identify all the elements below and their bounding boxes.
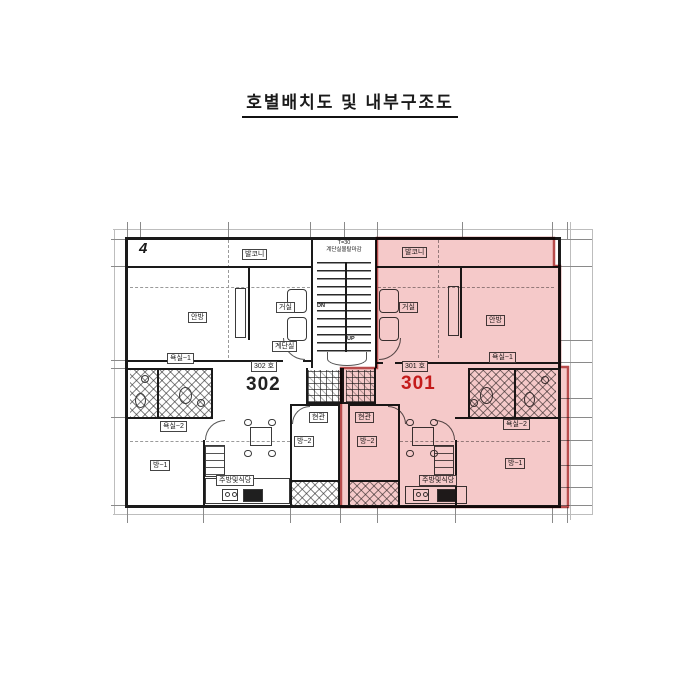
wall-segment	[125, 237, 128, 508]
wall-segment	[340, 368, 344, 404]
grid-tick	[558, 465, 592, 466]
utility-tile-area-301	[350, 482, 398, 505]
guide-line	[114, 229, 115, 515]
room-label-master-302: 안방	[188, 312, 207, 323]
wall-segment	[376, 266, 558, 268]
kitchen-shelf	[434, 445, 454, 477]
dining-chair	[244, 450, 252, 457]
wall-segment	[127, 368, 213, 370]
room-label-balcony-301: 발코니	[402, 247, 427, 258]
sofa	[379, 289, 399, 313]
wall-segment	[211, 368, 213, 419]
wardrobe	[448, 286, 459, 336]
corner-mark: 4	[139, 240, 147, 257]
grid-tick	[558, 440, 592, 441]
dining-chair	[244, 419, 252, 426]
room-label-bedroom1-302: 방~1	[150, 460, 170, 471]
grid-tick	[567, 222, 568, 239]
dining-chair	[430, 450, 438, 457]
stair-landing-arc	[327, 352, 367, 366]
entrance-tile-area-301	[346, 370, 374, 402]
dining-chair	[430, 419, 438, 426]
kitchen-shelf	[205, 445, 225, 477]
stair-up-label: UP	[347, 336, 355, 342]
grid-tick	[558, 505, 592, 506]
grid-tick	[558, 340, 592, 341]
sofa	[379, 317, 399, 341]
stair-treads	[317, 262, 371, 352]
room-label-bedroom1-301: 방~1	[505, 458, 525, 469]
grid-tick	[558, 239, 592, 240]
dining-chair	[268, 450, 276, 457]
guide-line	[113, 229, 593, 230]
dining-chair	[268, 419, 276, 426]
dining-chair	[406, 450, 414, 457]
grid-tick	[127, 507, 128, 523]
wall-segment	[375, 237, 377, 368]
guide-line	[592, 229, 593, 514]
room-label-bedroom2-301: 방~2	[357, 436, 377, 447]
wall-segment	[311, 237, 313, 368]
dining-table	[412, 427, 434, 446]
wall-segment	[468, 368, 470, 419]
wardrobe	[235, 288, 246, 338]
room-label-bath1-302: 욕실~1	[167, 353, 194, 364]
room-label-kitchen-302: 주방및식당	[216, 475, 254, 486]
wall-segment	[374, 368, 376, 404]
centerline	[130, 287, 310, 289]
unit-designation-302: 302 호	[251, 361, 277, 372]
stove	[243, 489, 263, 502]
grid-tick	[552, 507, 553, 523]
grid-tick	[558, 362, 592, 363]
grid-tick	[455, 507, 456, 523]
wall-segment	[455, 440, 457, 507]
sink-bowl	[423, 492, 428, 497]
wall-segment	[203, 440, 205, 507]
room-label-living-301: 거실	[399, 302, 418, 313]
toilet	[179, 387, 192, 404]
washbasin	[197, 399, 205, 407]
washbasin	[141, 375, 149, 383]
grid-tick	[203, 507, 204, 523]
wall-segment	[348, 480, 400, 482]
sink-bowl	[416, 492, 421, 497]
toilet	[524, 392, 535, 407]
washbasin	[541, 376, 549, 384]
door-arc	[292, 406, 310, 424]
washbasin	[470, 399, 478, 407]
room-label-kitchen-301: 주방및식당	[419, 475, 457, 486]
wall-segment	[398, 404, 400, 505]
wall-segment	[306, 368, 308, 404]
wall-segment	[514, 368, 516, 417]
centerline	[378, 287, 554, 289]
centerline	[438, 240, 440, 358]
wall-segment	[157, 368, 159, 417]
wall-segment	[290, 480, 340, 482]
wall-segment	[460, 268, 462, 338]
room-label-entrance-302: 현관	[309, 412, 328, 423]
stair-dn-label: DN	[317, 303, 325, 309]
wall-segment	[303, 360, 313, 362]
grid-tick	[558, 417, 592, 418]
sofa	[287, 317, 307, 341]
centerline	[228, 240, 230, 358]
floor-plan-page: 호별배치도 및 내부구조도 4 T=30 계단실몰탈마감 DN UP 계단실 발…	[0, 0, 700, 700]
wall-segment	[127, 417, 213, 419]
room-label-living-302: 거실	[276, 302, 295, 313]
wall-segment	[338, 404, 340, 505]
toilet	[135, 393, 146, 408]
wall-segment	[125, 505, 561, 508]
wall-segment	[468, 368, 558, 370]
wall-segment	[348, 404, 350, 505]
grid-tick	[558, 266, 592, 267]
door-arc	[379, 338, 401, 360]
unit-designation-301: 301 호	[402, 361, 428, 372]
grid-tick	[558, 398, 592, 399]
wall-segment	[290, 404, 292, 505]
room-label-stairwell: 계단실	[272, 341, 297, 352]
entrance-tile-area-302	[308, 370, 340, 402]
room-label-entrance-301: 현관	[355, 412, 374, 423]
dining-chair	[406, 419, 414, 426]
room-label-bath2-302: 욕실~2	[160, 421, 187, 432]
guide-line	[113, 514, 593, 515]
grid-tick	[290, 507, 291, 523]
grid-tick	[377, 507, 378, 523]
sink-bowl	[225, 492, 230, 497]
grid-tick	[558, 487, 592, 488]
wall-segment	[455, 417, 470, 419]
door-arc	[388, 406, 406, 424]
stair-note-bottom: 계단실몰탈마감	[313, 247, 375, 254]
grid-tick	[567, 507, 568, 523]
unit-number-301: 301	[401, 373, 436, 395]
stove	[437, 489, 457, 502]
unit-number-302: 302	[246, 374, 281, 396]
room-label-balcony-302: 발코니	[242, 249, 267, 260]
stair-note: T=30 계단실몰탈마감	[313, 240, 375, 253]
wall-segment	[127, 266, 313, 268]
toilet	[480, 387, 493, 404]
grid-tick	[340, 507, 341, 523]
room-label-bedroom2-302: 방~2	[294, 436, 314, 447]
room-label-bath1-301: 욕실~1	[489, 352, 516, 363]
utility-tile-area-302	[292, 482, 338, 505]
room-label-bath2-301: 욕실~2	[503, 419, 530, 430]
dining-table	[250, 427, 272, 446]
wall-segment	[248, 268, 250, 340]
wall-segment	[290, 404, 340, 406]
wall-segment	[377, 362, 383, 364]
door-arc	[205, 420, 225, 440]
sink-bowl	[232, 492, 237, 497]
door-arc	[435, 420, 455, 440]
floor-plan	[0, 0, 700, 700]
wall-segment	[558, 237, 561, 508]
room-label-master-301: 안방	[486, 315, 505, 326]
wall-segment	[348, 404, 400, 406]
